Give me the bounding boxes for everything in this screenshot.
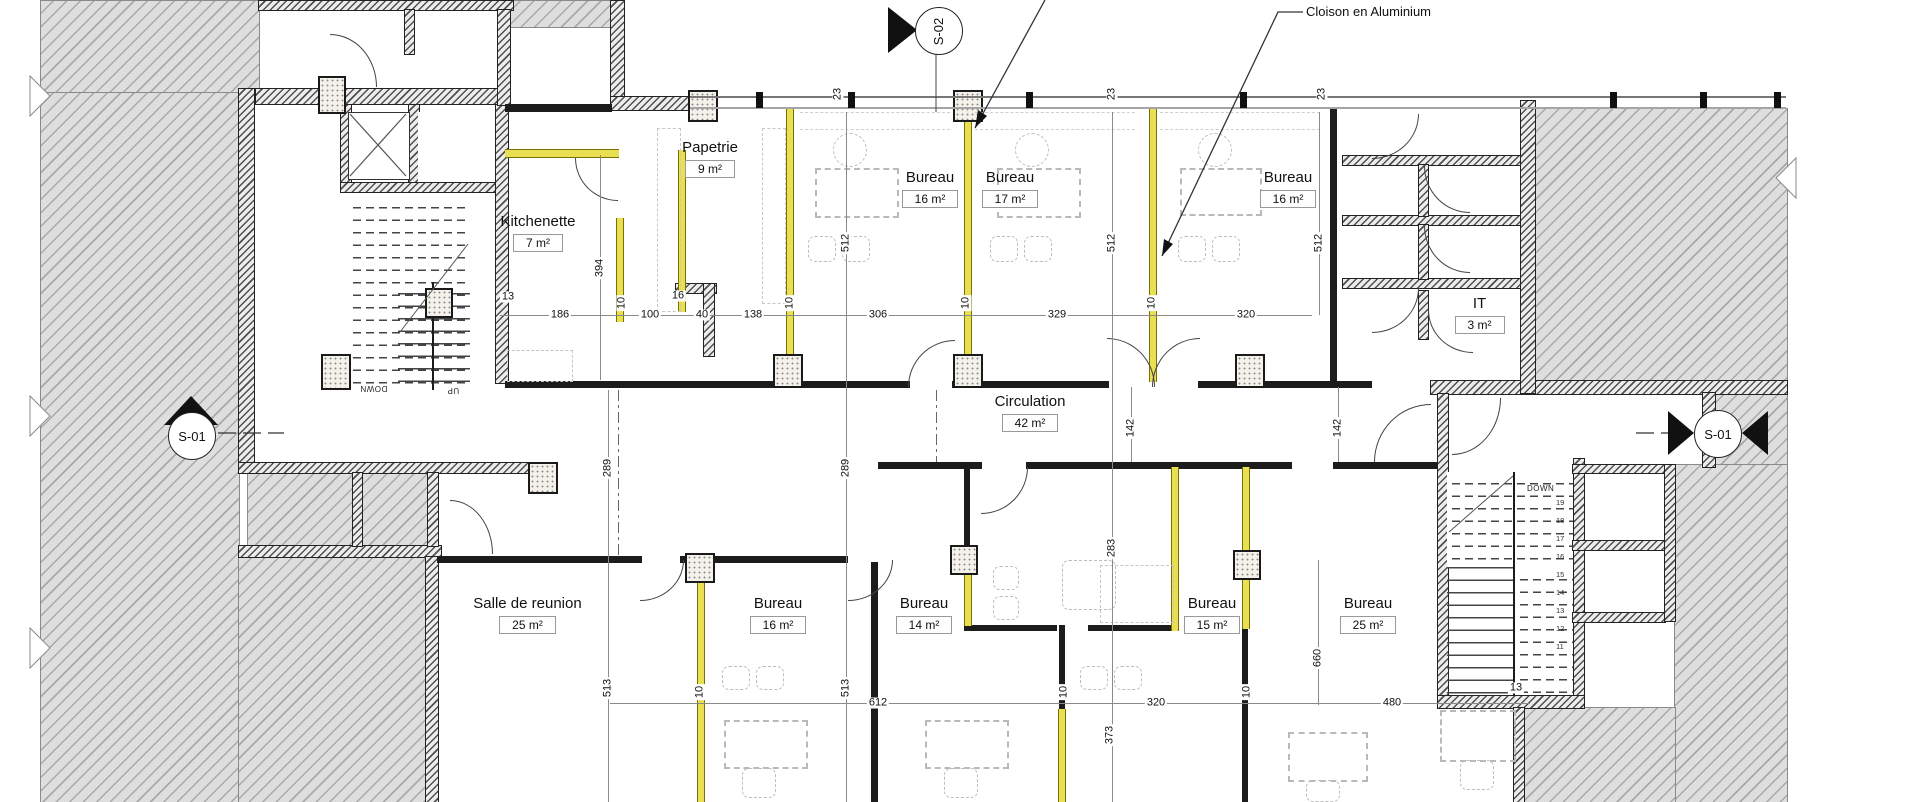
section-triangle — [1668, 411, 1694, 455]
dim-label: 513 — [841, 677, 852, 699]
dim-label: 10 — [1059, 684, 1070, 700]
room-label-circulation: Circulation 42 m² — [975, 394, 1085, 432]
dimension-line — [1319, 112, 1320, 315]
tread-number: 14 — [1556, 588, 1564, 597]
column — [688, 90, 718, 122]
wall-band — [1342, 155, 1532, 166]
shaft-room — [418, 112, 495, 182]
door-arc — [450, 500, 493, 554]
door-arc — [1374, 404, 1431, 462]
wall-band — [425, 556, 439, 802]
room-area: 17 m² — [982, 190, 1039, 208]
wall-band — [340, 182, 509, 193]
stair-rail — [1513, 472, 1515, 695]
tread-number: 15 — [1556, 570, 1564, 579]
dim-label: 100 — [639, 310, 661, 321]
room-area: 25 m² — [1340, 616, 1397, 634]
dim-label: 283 — [1107, 537, 1118, 559]
dim-label: 23 — [833, 86, 844, 102]
dim-label: 142 — [1333, 417, 1344, 439]
wall — [505, 381, 910, 388]
room-label-papetrie: Papetrie 9 m² — [660, 140, 760, 178]
wall-band — [1342, 278, 1532, 289]
dim-label: 373 — [1105, 724, 1116, 746]
door-arc — [1424, 226, 1470, 273]
room-label-it: IT 3 m² — [1432, 296, 1527, 334]
section-marker-s01-left: S-01 — [168, 412, 216, 460]
column — [685, 553, 715, 583]
wall-band — [238, 462, 534, 474]
door-arc — [981, 467, 1028, 514]
room-label-bureau-b4: Bureau 25 m² — [1318, 596, 1418, 634]
tread-number: 12 — [1556, 624, 1564, 633]
desk-row — [1160, 112, 1320, 130]
facade-mullion — [1610, 92, 1617, 108]
dim-label: 142 — [1126, 417, 1137, 439]
tread-number: 18 — [1556, 516, 1564, 525]
dim-label: 10 — [1242, 684, 1253, 700]
room-label-bureau-t3: Bureau 16 m² — [1238, 170, 1338, 208]
facade-mullion — [1774, 92, 1781, 108]
stair-down-label: DOWN — [360, 384, 387, 393]
tread-number: 19 — [1556, 498, 1564, 507]
tread-number: 17 — [1556, 534, 1564, 543]
chair — [990, 236, 1018, 262]
hatch-region — [1532, 108, 1788, 384]
column — [528, 462, 558, 494]
dimension-line — [500, 315, 1312, 316]
column — [1235, 354, 1265, 388]
room-name: Salle de reunion — [455, 596, 600, 613]
stair-tread-numbers: 191817161514131211 — [1556, 498, 1564, 651]
column — [321, 354, 351, 390]
door-arc — [1372, 114, 1419, 159]
chair — [1114, 666, 1142, 690]
room-area: 3 m² — [1455, 316, 1505, 334]
wall-band — [352, 472, 363, 547]
wall — [1026, 462, 1292, 469]
facade-mullion — [1240, 92, 1247, 108]
chair — [1024, 236, 1052, 262]
section-marker-text: S-02 — [932, 17, 947, 44]
desk — [1288, 732, 1368, 782]
chair — [742, 768, 776, 798]
hatch-region — [507, 0, 613, 28]
room-label-bureau-b1: Bureau 16 m² — [728, 596, 828, 634]
wall — [1330, 108, 1337, 382]
floor-plan: DOWN UP DOWN 191817161514131211 — [0, 0, 1920, 802]
section-triangle — [888, 7, 917, 53]
room-area: 16 m² — [1260, 190, 1317, 208]
facade-mullion — [1026, 92, 1033, 108]
dim-label: 512 — [1314, 232, 1325, 254]
dim-label: 329 — [1046, 310, 1068, 321]
chair — [993, 566, 1019, 590]
room-name: Kitchenette — [478, 214, 598, 231]
room-name: Papetrie — [660, 140, 760, 157]
tread-number: 11 — [1556, 642, 1564, 651]
wall-band — [255, 88, 509, 105]
leader-line-cloison-2 — [1162, 12, 1303, 256]
dim-label: 320 — [1145, 698, 1167, 709]
wall-band — [1430, 380, 1788, 395]
wall — [1333, 462, 1437, 469]
wall-band — [1572, 612, 1666, 623]
aluminium-partition — [1058, 709, 1066, 802]
dim-label: 10 — [617, 295, 628, 311]
room-label-bureau-b3: Bureau 15 m² — [1162, 596, 1262, 634]
section-marker-text: S-01 — [1704, 427, 1731, 442]
room-label-bureau-t2: Bureau 17 m² — [960, 170, 1060, 208]
wall-band — [404, 9, 415, 55]
wall — [1242, 628, 1248, 802]
stair-down-label: DOWN — [1527, 484, 1554, 493]
section-marker-s01-right: S-01 — [1694, 410, 1742, 458]
room-area: 14 m² — [896, 616, 953, 634]
dimension-line — [1112, 112, 1113, 802]
stair-up-label: UP — [447, 386, 459, 395]
tread-number: 13 — [1556, 606, 1564, 615]
dim-label: 512 — [841, 232, 852, 254]
room-label-salle: Salle de reunion 25 m² — [455, 596, 600, 634]
wall-band — [1664, 464, 1676, 622]
dim-label: 10 — [961, 295, 972, 311]
column — [1233, 550, 1261, 580]
desk — [724, 720, 808, 769]
desk-row — [975, 112, 1135, 130]
hatch-region — [1674, 464, 1788, 802]
column — [953, 354, 983, 388]
tread-number: 16 — [1556, 552, 1564, 561]
dim-label: 13 — [500, 292, 516, 303]
room-name: Bureau — [874, 596, 974, 613]
boundary-line — [618, 390, 619, 555]
table — [1015, 133, 1049, 167]
door-arc — [848, 560, 893, 601]
desk — [1440, 710, 1516, 762]
dim-label: 13 — [1508, 683, 1524, 694]
chair — [808, 236, 836, 262]
wall-band — [610, 96, 692, 111]
chair — [993, 596, 1019, 620]
room-area: 9 m² — [685, 160, 735, 178]
door-arc — [1372, 288, 1419, 333]
kitchen-counter — [507, 350, 573, 382]
chair — [944, 768, 978, 798]
section-triangle — [1742, 411, 1768, 455]
dim-label: 40 — [694, 310, 710, 321]
column — [773, 354, 803, 388]
wall — [964, 625, 1057, 631]
dim-label: 612 — [867, 698, 889, 709]
cloison-annotation: Cloison en Aluminium — [1306, 4, 1431, 19]
hatch-room — [361, 472, 429, 546]
table — [1198, 133, 1232, 167]
door-arc — [1452, 398, 1501, 455]
dim-label: 186 — [549, 310, 571, 321]
chair — [1178, 236, 1206, 262]
dim-label: 289 — [841, 457, 852, 479]
room-name: Bureau — [1318, 596, 1418, 613]
section-marker-text: S-01 — [178, 429, 205, 444]
desk — [925, 720, 1009, 769]
wall-band — [1572, 464, 1666, 474]
room-area: 7 m² — [513, 234, 563, 252]
hatch-region — [238, 557, 439, 802]
wall-band — [610, 0, 625, 106]
room-area: 15 m² — [1184, 616, 1241, 634]
wall-band — [497, 9, 511, 106]
wall-band — [427, 472, 439, 547]
wall-band — [1573, 458, 1585, 697]
wall — [1198, 381, 1372, 388]
chair — [1080, 666, 1108, 690]
aluminium-partition — [964, 108, 972, 382]
dim-label: 394 — [595, 257, 606, 279]
wall-band — [238, 545, 442, 558]
shelf — [762, 128, 786, 304]
wall-band — [238, 88, 255, 474]
dim-label: 10 — [785, 295, 796, 311]
chair — [756, 666, 784, 690]
wall-band — [1572, 540, 1666, 551]
facade-mullion — [756, 92, 763, 108]
room-name: IT — [1432, 296, 1527, 313]
hatch-region — [1523, 707, 1676, 802]
dim-label: 23 — [1317, 86, 1328, 102]
door-arc — [575, 158, 618, 201]
wall-band — [1342, 215, 1532, 226]
section-marker-s02: S-02 — [915, 7, 963, 55]
room-name: Bureau — [1238, 170, 1338, 187]
chair — [722, 666, 750, 690]
dim-label: 306 — [867, 310, 889, 321]
dimension-line — [608, 390, 609, 802]
wall-band — [1437, 695, 1585, 709]
facade-mullion — [848, 92, 855, 108]
room-area: 42 m² — [1002, 414, 1059, 432]
facade-mullion — [1700, 92, 1707, 108]
door-arc — [1424, 166, 1470, 213]
hatch-room — [247, 472, 354, 546]
table — [833, 133, 867, 167]
dim-label: 513 — [603, 677, 614, 699]
chair — [1212, 236, 1240, 262]
room-name: Bureau — [960, 170, 1060, 187]
wall-band — [1520, 100, 1536, 394]
desk-row — [800, 112, 950, 130]
dim-label: 660 — [1313, 647, 1324, 669]
room-name: Bureau — [728, 596, 828, 613]
hatch-region — [40, 0, 260, 94]
dim-label: 16 — [670, 291, 686, 302]
dim-label: 10 — [1147, 295, 1158, 311]
room-label-bureau-b2: Bureau 14 m² — [874, 596, 974, 634]
column — [318, 76, 346, 114]
chair — [1460, 760, 1494, 790]
column — [950, 545, 978, 575]
door-arc — [1152, 338, 1200, 387]
room-area: 16 m² — [750, 616, 807, 634]
wall — [437, 556, 642, 563]
wall — [505, 104, 612, 112]
dim-label: 289 — [603, 457, 614, 479]
elevator-shaft — [348, 112, 410, 180]
aluminium-partition — [505, 149, 619, 158]
dim-label: 480 — [1381, 698, 1403, 709]
door-arc — [1107, 338, 1155, 387]
aluminium-partition — [786, 108, 794, 382]
door-arc — [640, 560, 684, 601]
room-area: 25 m² — [499, 616, 556, 634]
room-name: Circulation — [975, 394, 1085, 411]
dim-label: 23 — [1107, 86, 1118, 102]
dim-label: 512 — [1107, 232, 1118, 254]
room-name: Bureau — [1162, 596, 1262, 613]
dim-label: 138 — [742, 310, 764, 321]
dim-label: 10 — [695, 684, 706, 700]
boundary-line — [936, 390, 937, 462]
column — [425, 288, 453, 318]
chair — [1306, 780, 1340, 802]
wall-band — [258, 0, 514, 11]
dim-label: 320 — [1235, 310, 1257, 321]
room-label-kitchenette: Kitchenette 7 m² — [478, 214, 598, 252]
room-area: 16 m² — [902, 190, 959, 208]
door-arc — [908, 340, 955, 387]
aluminium-partition — [1149, 108, 1157, 382]
stair-treads — [1447, 556, 1515, 695]
